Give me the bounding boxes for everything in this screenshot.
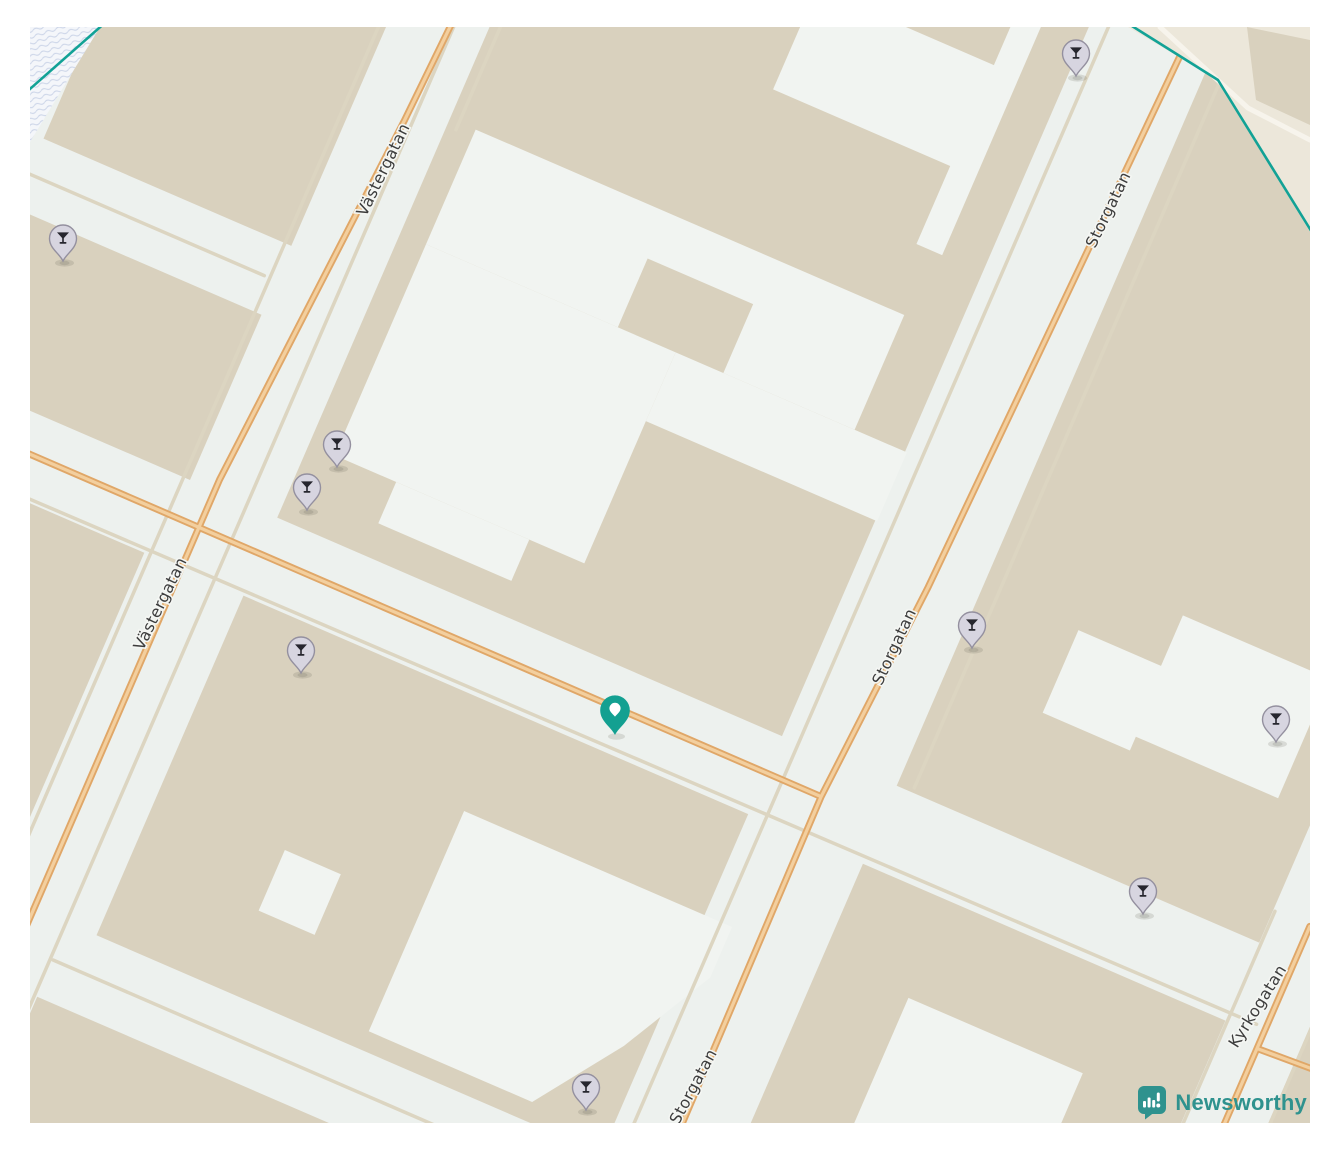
newsworthy-logo[interactable]: Newsworthy — [1137, 1085, 1307, 1120]
map-canvas: VästergatanVästergatanStorgatanStorgatan… — [0, 0, 1340, 1152]
map-graphic: VästergatanVästergatanStorgatanStorgatan… — [0, 0, 1340, 1152]
newsworthy-logo-text: Newsworthy — [1175, 1090, 1307, 1116]
bar-chart-icon — [1137, 1085, 1167, 1120]
